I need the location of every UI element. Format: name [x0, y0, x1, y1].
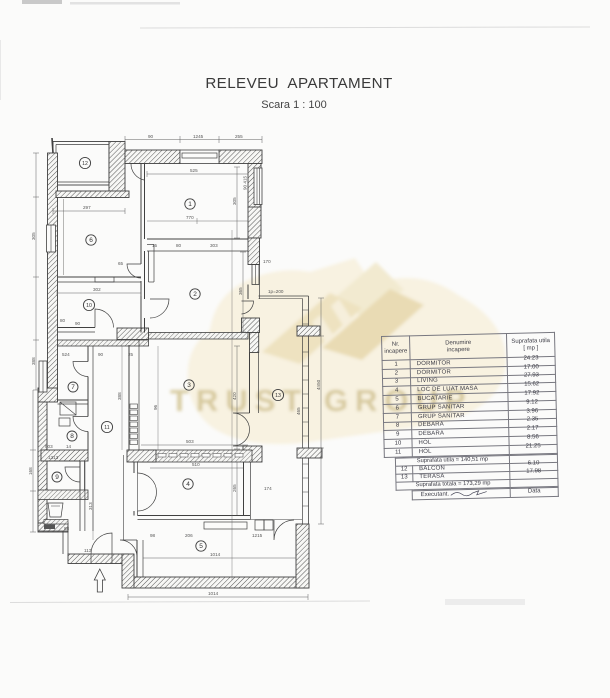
svg-text:388: 388 [31, 357, 36, 365]
svg-text:388: 388 [117, 392, 122, 400]
svg-text:1014: 1014 [210, 552, 221, 557]
svg-text:15: 15 [152, 243, 158, 248]
svg-text:7: 7 [71, 384, 75, 391]
svg-text:303: 303 [210, 243, 218, 248]
svg-text:1014: 1014 [208, 591, 219, 596]
svg-text:9: 9 [55, 474, 59, 481]
svg-text:1245: 1245 [193, 134, 204, 139]
svg-text:4n50: 4n50 [316, 379, 321, 390]
svg-text:302: 302 [93, 287, 101, 292]
svg-text:80: 80 [60, 318, 66, 323]
svg-text:297: 297 [83, 205, 91, 210]
svg-text:5: 5 [199, 543, 203, 550]
svg-text:465: 465 [296, 407, 301, 415]
svg-text:8: 8 [70, 433, 74, 440]
svg-text:305: 305 [31, 232, 36, 240]
svg-text:25: 25 [128, 352, 134, 357]
svg-text:170: 170 [263, 259, 271, 264]
svg-text:503: 503 [45, 444, 53, 449]
svg-text:4: 4 [186, 481, 190, 488]
svg-text:1p=200: 1p=200 [268, 289, 284, 294]
svg-text:3: 3 [187, 382, 191, 389]
svg-text:13: 13 [275, 393, 281, 399]
svg-text:12: 12 [82, 161, 88, 167]
svg-text:510: 510 [192, 462, 200, 467]
svg-text:168: 168 [28, 467, 33, 475]
svg-text:90: 90 [148, 134, 154, 139]
svg-text:6: 6 [89, 237, 93, 244]
svg-text:770: 770 [186, 215, 194, 220]
svg-text:524: 524 [62, 352, 70, 357]
svg-text:255: 255 [235, 134, 243, 139]
svg-text:90: 90 [98, 352, 104, 357]
svg-text:305: 305 [232, 197, 237, 205]
svg-text:113: 113 [84, 548, 92, 553]
svg-text:90 415: 90 415 [243, 176, 248, 190]
svg-text:1215: 1215 [252, 533, 263, 538]
svg-text:14: 14 [66, 444, 72, 449]
svg-text:365: 365 [238, 287, 243, 295]
svg-text:206: 206 [185, 533, 193, 538]
svg-text:10: 10 [86, 303, 92, 309]
svg-text:174: 174 [264, 486, 272, 491]
svg-text:525: 525 [190, 168, 198, 173]
svg-text:503: 503 [186, 439, 194, 444]
svg-text:98: 98 [150, 533, 156, 538]
svg-text:2: 2 [193, 291, 197, 298]
svg-text:1313: 1313 [48, 455, 59, 460]
svg-text:90: 90 [75, 321, 81, 326]
svg-text:80: 80 [176, 243, 182, 248]
svg-text:88: 88 [64, 526, 70, 531]
svg-text:65: 65 [118, 261, 124, 266]
svg-text:1: 1 [188, 201, 192, 208]
svg-text:313: 313 [88, 502, 93, 510]
svg-text:96: 96 [153, 404, 158, 410]
svg-text:420: 420 [232, 392, 237, 400]
svg-text:265: 265 [232, 484, 237, 492]
svg-text:11: 11 [104, 425, 109, 431]
